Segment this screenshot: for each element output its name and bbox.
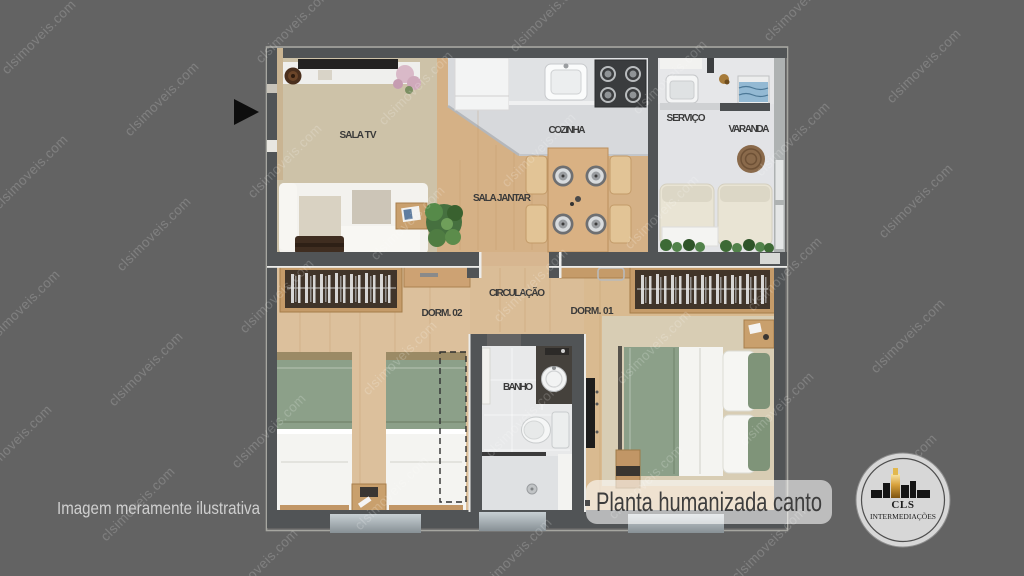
svg-text:Planta humanizada canto: Planta humanizada canto: [596, 487, 822, 517]
svg-text:SALA JANTAR: SALA JANTAR: [473, 193, 532, 204]
svg-text:SERVIÇO: SERVIÇO: [667, 113, 706, 124]
svg-text:BANHO: BANHO: [503, 382, 533, 393]
svg-text:clsimoveis.com: clsimoveis.com: [0, 267, 63, 347]
svg-text:clsimoveis.com: clsimoveis.com: [761, 0, 841, 44]
svg-text:DORM. 02: DORM. 02: [422, 308, 463, 319]
svg-text:clsimoveis.com: clsimoveis.com: [0, 0, 79, 77]
svg-text:DORM. 01: DORM. 01: [571, 306, 614, 317]
svg-text:CLS: CLS: [891, 499, 914, 511]
svg-text:clsimoveis.com: clsimoveis.com: [0, 402, 55, 482]
svg-text:clsimoveis.com: clsimoveis.com: [106, 329, 186, 409]
svg-text:clsimoveis.com: clsimoveis.com: [0, 132, 71, 212]
svg-text:clsimoveis.com: clsimoveis.com: [221, 526, 301, 576]
svg-text:clsimoveis.com: clsimoveis.com: [868, 296, 948, 376]
svg-text:clsimoveis.com: clsimoveis.com: [884, 26, 964, 106]
svg-text:INTERMEDIAÇÕES: INTERMEDIAÇÕES: [870, 511, 936, 521]
svg-text:Imagem meramente ilustrativa: Imagem meramente ilustrativa: [57, 498, 260, 518]
svg-text:SALA TV: SALA TV: [340, 130, 377, 141]
svg-text:VARANDA: VARANDA: [729, 124, 770, 135]
svg-text:clsimoveis.com: clsimoveis.com: [876, 161, 956, 241]
svg-text:clsimoveis.com: clsimoveis.com: [114, 194, 194, 274]
svg-text:clsimoveis.com: clsimoveis.com: [122, 59, 202, 139]
